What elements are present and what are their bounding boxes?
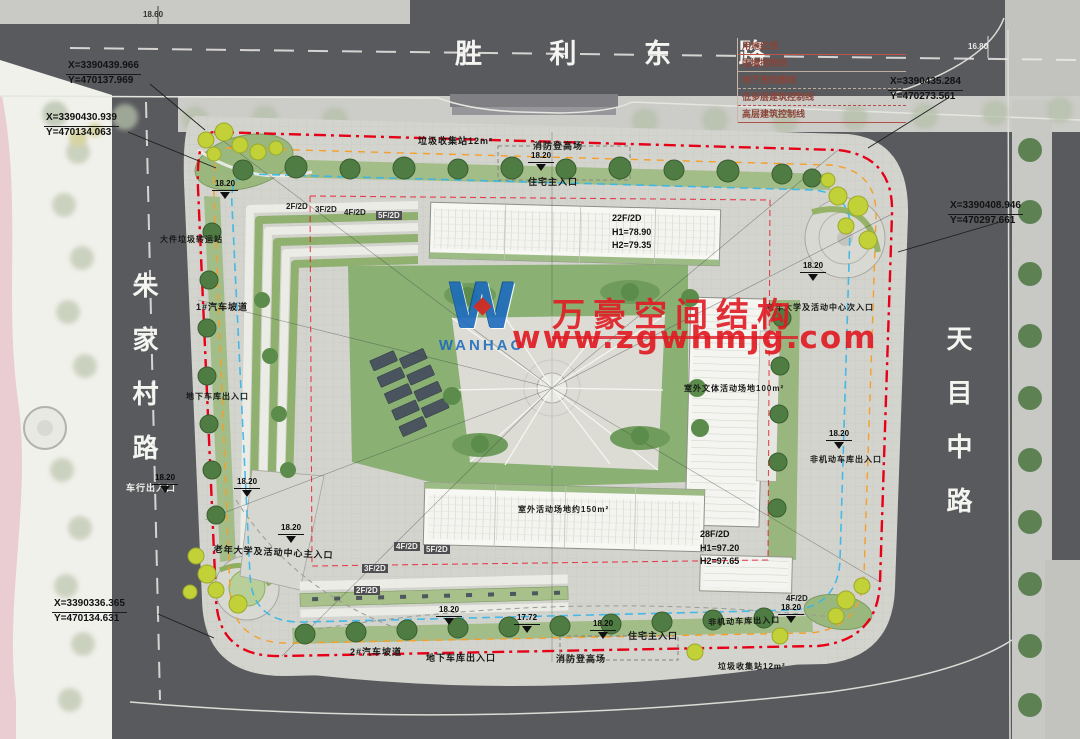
label-outdoor-activity-area: 室外活动场地约150m² [518, 504, 609, 515]
elevation-triangle-icon [220, 192, 230, 199]
tower-floors: 28F/2D [700, 528, 739, 542]
elevation-marker: 18.20 [436, 606, 462, 625]
elevation-marker: 18.20 [778, 604, 804, 623]
elevation-marker: 18.20 [152, 474, 178, 493]
coord-y: Y=470273.561 [888, 91, 963, 105]
elevation-triangle-icon [160, 486, 170, 493]
label-bulk-garbage-station: 大件垃圾转运站 [160, 234, 223, 245]
elevation-triangle-icon [834, 442, 844, 449]
legend-item-red-line: 用地红线 [738, 38, 906, 55]
elevation-value: 18.20 [436, 606, 462, 617]
elevation-value: 18.20 [590, 620, 616, 631]
label-garbage-station-north: 垃圾收集站12m² [418, 134, 493, 147]
podium-label: 3F/2D [315, 205, 337, 214]
elevation-value: 18.20 [152, 474, 178, 485]
label-garage-entrance-south: 地下车库出入口 [426, 651, 496, 664]
elevation-marker: 18.20 [590, 620, 616, 639]
coord-x: X=3390435.284 [888, 76, 963, 91]
elevation-value: 17.72 [514, 614, 540, 625]
elevation-triangle-icon [536, 164, 546, 171]
label-car-ramp-1: 1#汽车坡道 [196, 300, 248, 313]
tower-h2: H2=97.65 [700, 555, 739, 569]
label-car-ramp-2: 2#汽车坡道 [350, 645, 402, 658]
coord-x: X=3390430.939 [44, 112, 119, 127]
coordinate-label-nw-inner: X=3390430.939 Y=470134.063 [44, 112, 119, 140]
tower-floors: 22F/2D [612, 212, 651, 226]
elevation-value: 18.20 [826, 430, 852, 441]
coord-x: X=3390439.966 [66, 60, 141, 75]
coordinate-label-ne: X=3390435.284 Y=470273.561 [888, 76, 963, 104]
north-tower-label: 22F/2D H1=78.90 H2=79.35 [612, 212, 651, 253]
label-fire-access-south: 消防登高场 [556, 652, 606, 665]
podium-label: 4F/2D [786, 594, 808, 603]
podium-label: 2F/2D [354, 586, 380, 595]
elevation-value: 18.20 [234, 478, 260, 489]
road-elevation-nw: 18.60 [143, 10, 163, 19]
podium-label: 4F/2D [344, 208, 366, 217]
legend-item-highrise-line: 高层建筑控制线 [738, 106, 906, 123]
south-tower-label: 28F/2D H1=97.20 H2=97.65 [700, 528, 739, 569]
site-plan: 胜 利 东 路 朱家村路 天目中路 用地红线 围墙控制线 地下室轮廓线 低多层建… [0, 0, 1080, 739]
podium-label: 5F/2D [376, 211, 402, 220]
coord-y: Y=470297.661 [948, 215, 1023, 229]
south-tower [423, 482, 705, 551]
elevation-value: 18.20 [528, 152, 554, 163]
northeast-sidewalk [1005, 0, 1080, 100]
elevation-marker: 18.20 [800, 262, 826, 281]
podium-label: 5F/2D [424, 545, 450, 554]
podium-label: 3F/2D [362, 564, 388, 573]
north-top-strip [0, 0, 410, 24]
coord-x: X=3390336.365 [52, 598, 127, 613]
elevation-triangle-icon [444, 618, 454, 625]
coordinate-label-sw: X=3390336.365 Y=470134.631 [52, 598, 127, 626]
elevation-value: 18.20 [278, 524, 304, 535]
tower-h2: H2=79.35 [612, 239, 651, 253]
label-residential-main-entrance-north: 住宅主入口 [528, 175, 578, 188]
coord-y: Y=470137.969 [66, 75, 141, 89]
road-name-west: 朱家村路 [126, 272, 163, 488]
legend-item-wall-line: 围墙控制线 [738, 55, 906, 72]
coordinate-label-east: X=3390408.946 Y=470297.661 [948, 200, 1023, 228]
elevation-triangle-icon [786, 616, 796, 623]
elevation-triangle-icon [598, 632, 608, 639]
southeast-wedge [1045, 560, 1080, 739]
tower-h1: H1=78.90 [612, 226, 651, 240]
legend-item-lowrise-line: 低多层建筑控制线 [738, 89, 906, 106]
elevation-value: 18.20 [778, 604, 804, 615]
elevation-value: 18.20 [800, 262, 826, 273]
bus-bay [450, 94, 618, 107]
elevation-value: 18.20 [212, 180, 238, 191]
elevation-marker: 18.20 [278, 524, 304, 543]
label-residential-main-entrance-south: 住宅主入口 [628, 629, 678, 642]
tower-h1: H1=97.20 [700, 542, 739, 556]
legend-item-basement-line: 地下室轮廓线 [738, 72, 906, 89]
coord-x: X=3390408.946 [948, 200, 1023, 215]
elevation-marker: 18.20 [528, 152, 554, 171]
podium-label: 2F/2D [286, 202, 308, 211]
coordinate-label-nw-outer: X=3390439.966 Y=470137.969 [66, 60, 141, 88]
elevation-triangle-icon [242, 490, 252, 497]
label-garbage-station-south: 垃圾收集站12m² [718, 661, 786, 672]
elevation-marker: 17.72 [514, 614, 540, 633]
road-elevation-ne: 16.80 [968, 42, 988, 51]
north-tower [429, 202, 720, 266]
elevation-marker: 18.20 [826, 430, 852, 449]
podium-terraces-south [300, 574, 569, 617]
podium-label: 4F/2D [394, 542, 420, 551]
label-outdoor-culture-area: 室外文体活动场地100m² [684, 383, 784, 394]
label-nonmotor-garage-east: 非机动车库出入口 [810, 454, 882, 465]
elevation-marker: 18.20 [212, 180, 238, 199]
road-name-east: 天目中路 [940, 325, 977, 541]
elevation-marker: 18.20 [234, 478, 260, 497]
legend: 用地红线 围墙控制线 地下室轮廓线 低多层建筑控制线 高层建筑控制线 [737, 38, 906, 123]
elevation-triangle-icon [808, 274, 818, 281]
coord-y: Y=470134.631 [52, 613, 127, 627]
label-garage-entrance-west: 地下车库出入口 [186, 391, 249, 402]
watermark-website: www.zgwhmjg.com [512, 320, 878, 356]
coord-y: Y=470134.063 [44, 127, 119, 141]
elevation-triangle-icon [286, 536, 296, 543]
elevation-triangle-icon [522, 626, 532, 633]
